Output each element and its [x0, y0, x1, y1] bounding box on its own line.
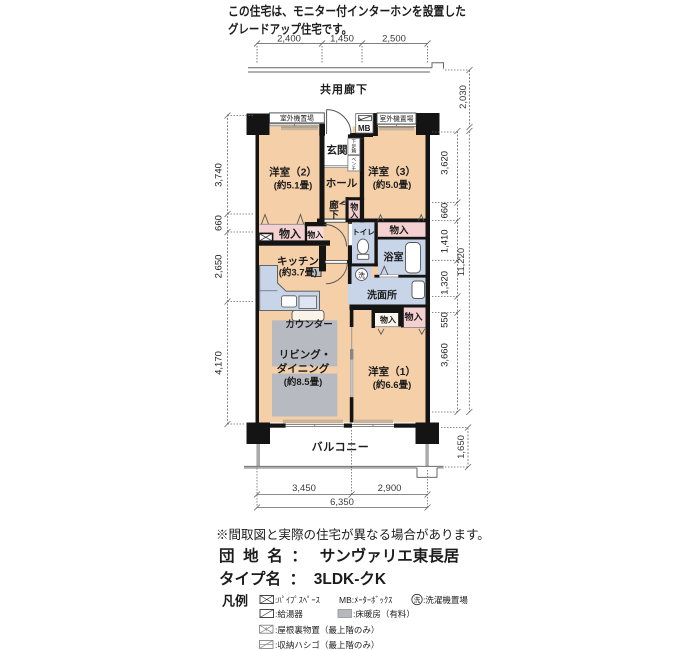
- svg-text:洗面所: 洗面所: [367, 289, 397, 302]
- svg-text:1,450: 1,450: [330, 34, 354, 45]
- svg-text:(約8.5畳): (約8.5畳): [284, 376, 323, 388]
- svg-text:2,650: 2,650: [214, 255, 225, 279]
- svg-text::床暖房（有料）: :床暖房（有料）: [353, 609, 415, 619]
- svg-text:MB: MB: [358, 124, 371, 133]
- svg-text:浴室: 浴室: [384, 251, 404, 264]
- svg-text:(約3.7畳): (約3.7畳): [279, 266, 318, 278]
- svg-text:※間取図と実際の住宅が異なる場合があります。: ※間取図と実際の住宅が異なる場合があります。: [216, 527, 490, 542]
- svg-text:4,170: 4,170: [214, 351, 225, 375]
- svg-text:洗: 洗: [358, 270, 365, 279]
- svg-text:550: 550: [440, 312, 451, 328]
- svg-text:洋室（3）: 洋室（3）: [368, 165, 416, 178]
- svg-text::ﾊﾟｲﾌﾟｽﾍﾟｰｽ: :ﾊﾟｲﾌﾟｽﾍﾟｰｽ: [275, 595, 320, 605]
- svg-text:箱: 箱: [351, 148, 356, 155]
- svg-text:凡例: 凡例: [222, 594, 248, 609]
- svg-text:3,740: 3,740: [214, 163, 225, 187]
- svg-text:リビング・: リビング・: [279, 348, 332, 361]
- svg-text:2,900: 2,900: [378, 483, 402, 494]
- svg-text:バルコニー: バルコニー: [312, 441, 370, 454]
- svg-text:(約5.1畳): (約5.1畳): [274, 180, 313, 192]
- svg-text:室外機置場: 室外機置場: [280, 114, 314, 123]
- svg-text:物入: 物入: [279, 227, 301, 241]
- svg-text:物入: 物入: [380, 315, 396, 325]
- svg-text:3,660: 3,660: [440, 343, 451, 367]
- svg-text:物入: 物入: [404, 311, 422, 322]
- svg-text:キッチン: キッチン: [277, 255, 319, 267]
- svg-text:タイプ名 ： 3LDK-クK: タイプ名 ： 3LDK-クK: [219, 569, 387, 588]
- svg-text:洋室（1）: 洋室（1）: [368, 365, 416, 378]
- svg-text::洗濯機置場: :洗濯機置場: [423, 595, 468, 605]
- svg-text::収納ハシゴ（最上階のみ）: :収納ハシゴ（最上階のみ）: [275, 640, 379, 650]
- svg-text:(約6.6畳): (約6.6畳): [373, 379, 412, 391]
- svg-text:物入: 物入: [307, 229, 323, 239]
- svg-text:3,620: 3,620: [440, 151, 451, 175]
- svg-text:2,030: 2,030: [458, 85, 469, 109]
- svg-text:共用廊下: 共用廊下: [320, 82, 368, 96]
- svg-text:洗: 洗: [414, 595, 421, 604]
- svg-text:2,400: 2,400: [277, 34, 301, 45]
- svg-text:1,320: 1,320: [440, 271, 451, 295]
- svg-text:玄関: 玄関: [327, 144, 348, 157]
- svg-text:6,350: 6,350: [330, 497, 354, 508]
- svg-text:下: 下: [329, 210, 339, 221]
- svg-text:11,220: 11,220: [456, 248, 467, 276]
- svg-text:入: 入: [349, 211, 358, 220]
- svg-text:ダイニング: ダイニング: [277, 362, 330, 375]
- svg-text:660: 660: [214, 215, 225, 231]
- svg-text:カウンター: カウンター: [285, 319, 333, 331]
- svg-text:室外機置場: 室外機置場: [380, 114, 414, 123]
- svg-text:3,450: 3,450: [292, 483, 316, 494]
- svg-text:物入: 物入: [389, 225, 409, 237]
- svg-text:ホール: ホール: [326, 178, 358, 190]
- svg-text:チ: チ: [351, 166, 356, 171]
- svg-text:トイレ: トイレ: [352, 228, 375, 237]
- svg-text:洋室（2）: 洋室（2）: [269, 166, 317, 179]
- svg-text:(約5.0畳): (約5.0畳): [373, 179, 412, 191]
- svg-text::給湯器: :給湯器: [275, 609, 303, 619]
- svg-text:この住宅は、モニター付インターホンを設置した: この住宅は、モニター付インターホンを設置した: [228, 4, 466, 19]
- svg-text::屋根裏物置（最上階のみ）: :屋根裏物置（最上階のみ）: [275, 625, 379, 635]
- svg-text:1,650: 1,650: [456, 435, 467, 459]
- svg-text:1,410: 1,410: [440, 229, 451, 253]
- svg-text:660: 660: [440, 203, 451, 219]
- svg-text:MB:ﾒｰﾀｰﾎﾞｯｸｽ: MB:ﾒｰﾀｰﾎﾞｯｸｽ: [339, 595, 392, 605]
- svg-text:2,500: 2,500: [382, 34, 406, 45]
- svg-text:団 地 名 ： サンヴァリエ東長居: 団 地 名 ： サンヴァリエ東長居: [219, 546, 459, 565]
